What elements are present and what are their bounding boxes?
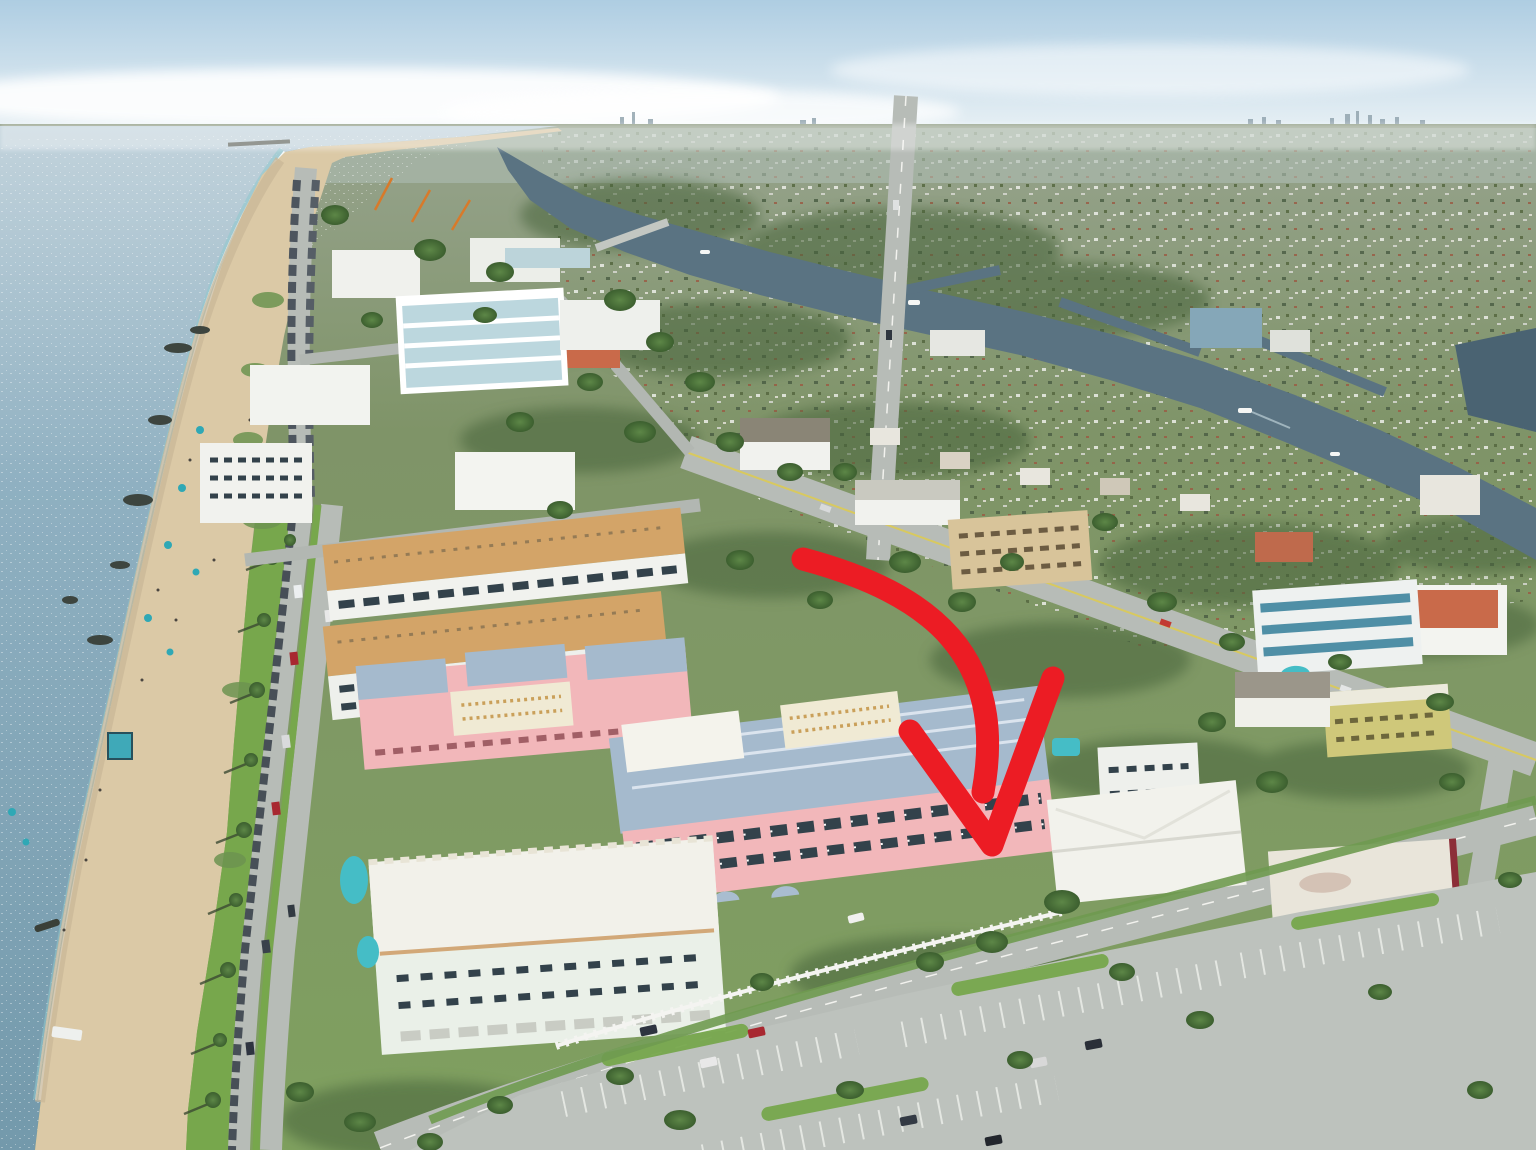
blue-waterfront-condo (1190, 308, 1262, 348)
complex-pool-1 (340, 856, 368, 904)
boat (1330, 452, 1340, 456)
white-condo-1 (332, 250, 420, 298)
complex-pool-2 (357, 936, 379, 968)
front-white-building (368, 838, 726, 1055)
cloud-haze (830, 44, 1470, 96)
blue-glass-condo (396, 288, 569, 395)
boat (908, 300, 920, 305)
neighbor-pool (1052, 738, 1080, 756)
sky (0, 0, 1536, 134)
aerial-photo (0, 0, 1536, 1150)
boat (1238, 408, 1252, 413)
brown-roof (740, 418, 830, 442)
horizon-haze (0, 124, 1536, 150)
waterfront-building (930, 330, 985, 356)
striped-condo-row (505, 248, 590, 268)
lifeguard-hut (108, 733, 132, 759)
waterfront-building-2 (1270, 330, 1310, 352)
beige-condo (948, 510, 1093, 590)
aerial-photo-canvas (0, 0, 1536, 1150)
tile-roof-house (1255, 532, 1313, 562)
boat (700, 250, 710, 254)
